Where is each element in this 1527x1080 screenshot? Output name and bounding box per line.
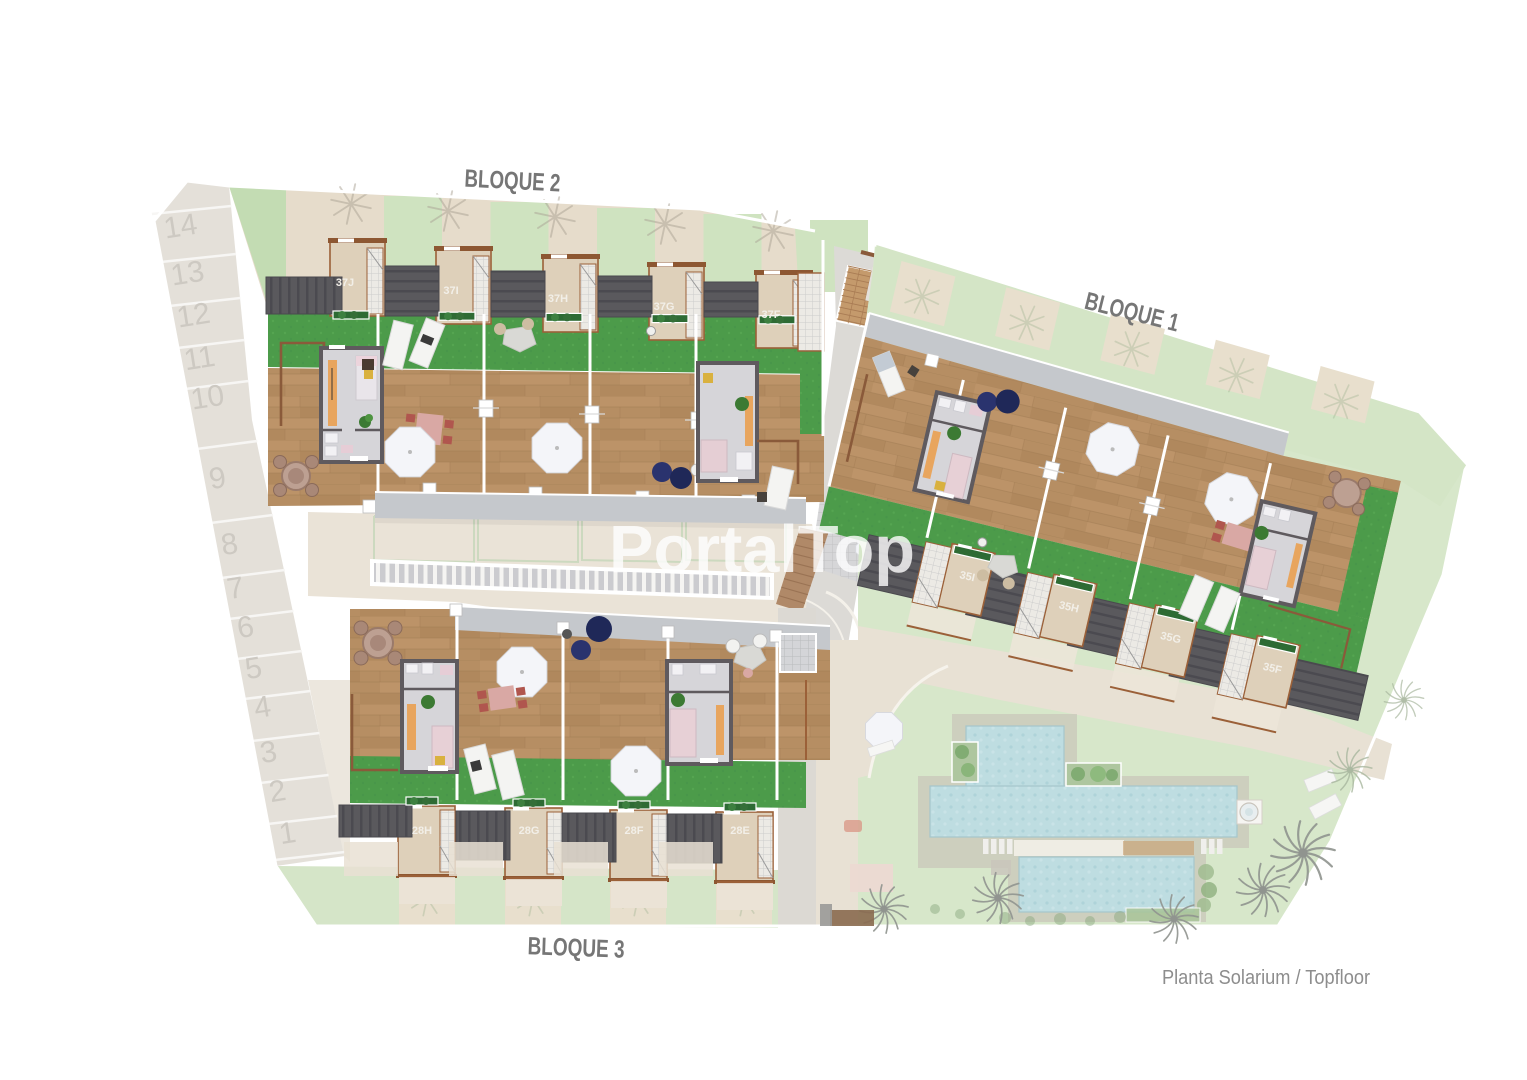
svg-text:PortalTop: PortalTop (609, 512, 915, 587)
svg-text:37G: 37G (654, 301, 675, 313)
svg-text:28H: 28H (412, 825, 432, 837)
svg-text:37F: 37F (762, 309, 781, 321)
svg-text:BLOQUE 3: BLOQUE 3 (527, 932, 625, 963)
svg-text:Planta Solarium / Topfloor: Planta Solarium / Topfloor (1162, 966, 1370, 989)
svg-text:28E: 28E (730, 825, 750, 837)
svg-text:37I: 37I (443, 285, 458, 297)
svg-text:37H: 37H (548, 293, 568, 305)
svg-text:14: 14 (161, 208, 199, 246)
svg-text:12: 12 (174, 297, 212, 335)
svg-text:28G: 28G (519, 825, 540, 837)
svg-text:13: 13 (168, 255, 206, 293)
svg-text:BLOQUE 2: BLOQUE 2 (464, 165, 561, 198)
svg-text:11: 11 (182, 340, 218, 377)
svg-text:10: 10 (188, 379, 226, 417)
svg-text:37J: 37J (336, 277, 354, 289)
svg-text:28F: 28F (625, 825, 644, 837)
